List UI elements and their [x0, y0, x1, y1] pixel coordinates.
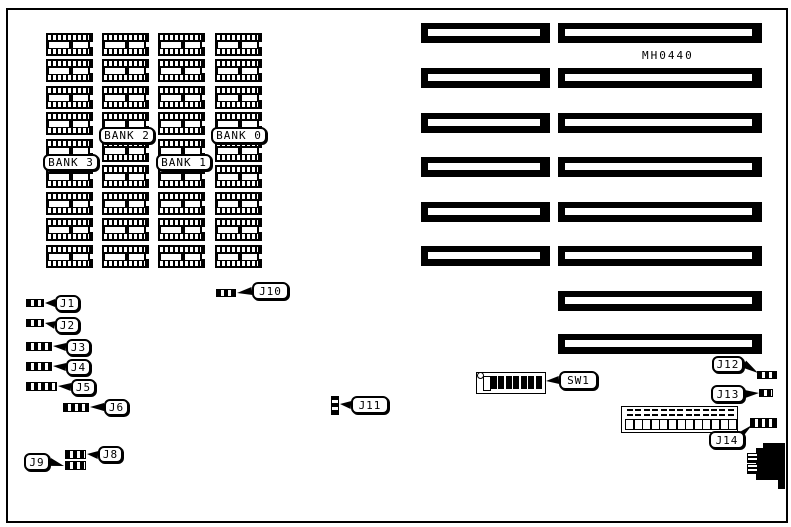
chip-detail	[217, 194, 258, 199]
callout-j1: J1	[55, 295, 80, 312]
chip-detail	[185, 121, 200, 127]
chip-detail	[73, 227, 88, 233]
slot-opening	[428, 208, 540, 215]
chip-detail	[73, 68, 88, 74]
jumper-j2	[26, 319, 44, 327]
power-connector-pin	[703, 409, 709, 416]
chip-detail	[242, 174, 257, 180]
callout-j10: J10	[252, 282, 289, 300]
expansion-slot-left-1	[421, 23, 550, 43]
chip-detail	[160, 35, 201, 40]
dip-switch	[476, 372, 546, 394]
chip-detail	[160, 141, 201, 146]
chip-detail	[48, 35, 89, 40]
memory-chip	[102, 59, 149, 82]
expansion-slot-right-4	[558, 157, 762, 177]
bank-label-bank1: BANK 1	[156, 154, 212, 171]
chip-notch	[202, 42, 205, 47]
chip-notch	[90, 121, 93, 126]
chip-notch	[146, 254, 149, 259]
memory-chip	[215, 165, 262, 188]
slot-opening	[565, 208, 752, 215]
slot-opening	[565, 163, 752, 170]
chip-notch	[90, 174, 93, 179]
chip-detail	[185, 201, 200, 207]
chip-detail	[161, 201, 181, 207]
chip-notch	[259, 148, 262, 153]
callout-j8: J8	[98, 446, 123, 463]
connector-pins-1	[747, 453, 758, 463]
dip-switch-cell-3	[498, 376, 504, 389]
expansion-slot-left-4	[421, 157, 550, 177]
callout-j11: J11	[351, 396, 389, 414]
slot-opening	[565, 74, 752, 81]
memory-chip	[102, 218, 149, 241]
chip-detail	[49, 121, 69, 127]
chip-detail	[104, 61, 145, 66]
power-connector-pin	[661, 409, 667, 416]
chip-detail	[185, 68, 200, 74]
memory-chip	[215, 59, 262, 82]
chip-notch	[259, 121, 262, 126]
power-connector-pin	[711, 409, 717, 416]
chip-detail	[161, 68, 181, 74]
chip-detail	[105, 148, 125, 154]
chip-notch	[90, 42, 93, 47]
chip-detail	[160, 208, 201, 213]
power-connector	[621, 406, 738, 433]
dip-switch-cell-4	[506, 376, 512, 389]
chip-detail	[48, 181, 89, 186]
chip-detail	[104, 35, 145, 40]
chip-detail	[73, 95, 88, 101]
memory-chip	[215, 192, 262, 215]
jumper-j12	[757, 371, 777, 379]
expansion-slot-right-3	[558, 113, 762, 133]
memory-chip	[102, 245, 149, 268]
chip-detail	[49, 174, 69, 180]
chip-detail	[129, 227, 144, 233]
chip-notch	[202, 68, 205, 73]
chip-detail	[217, 208, 258, 213]
chip-detail	[161, 42, 181, 48]
chip-detail	[129, 174, 144, 180]
chip-detail	[73, 254, 88, 260]
chip-detail	[185, 227, 200, 233]
chip-detail	[104, 49, 145, 54]
callout-j3: J3	[66, 339, 91, 356]
chip-detail	[185, 174, 200, 180]
chip-detail	[104, 114, 145, 119]
connector-pins-2	[747, 464, 758, 474]
chip-detail	[129, 254, 144, 260]
chip-notch	[146, 42, 149, 47]
power-connector-pin	[644, 409, 650, 416]
memory-chip	[158, 86, 205, 109]
chip-detail	[185, 42, 200, 48]
jumper-j13	[759, 389, 773, 397]
chip-detail	[48, 234, 89, 239]
chip-notch	[202, 254, 205, 259]
chip-detail	[160, 88, 201, 93]
memory-chip	[158, 245, 205, 268]
jumper-j11	[331, 396, 339, 415]
chip-detail	[129, 95, 144, 101]
callout-j12: J12	[712, 356, 744, 373]
expansion-slot-left-2	[421, 68, 550, 88]
part-number: MH0440	[642, 49, 694, 62]
chip-notch	[146, 227, 149, 232]
chip-detail	[160, 234, 201, 239]
jumper-j3	[26, 342, 52, 351]
chip-notch	[259, 174, 262, 179]
chip-detail	[129, 42, 144, 48]
chip-detail	[160, 261, 201, 266]
expansion-slot-left-3	[421, 113, 550, 133]
memory-chip	[158, 112, 205, 135]
power-connector-pin	[694, 409, 700, 416]
chip-detail	[73, 42, 88, 48]
chip-notch	[202, 95, 205, 100]
jumper-j8a	[65, 450, 86, 459]
memory-chip	[46, 33, 93, 56]
chip-detail	[104, 247, 145, 252]
chip-detail	[161, 254, 181, 260]
callout-j14: J14	[709, 431, 745, 449]
slot-opening	[565, 297, 752, 304]
chip-detail	[48, 261, 89, 266]
slot-opening	[565, 119, 752, 126]
expansion-slot-right-8	[558, 334, 762, 354]
chip-detail	[242, 201, 257, 207]
chip-notch	[146, 68, 149, 73]
callout-j13: J13	[711, 385, 745, 403]
chip-detail	[129, 148, 144, 154]
chip-notch	[146, 95, 149, 100]
power-connector-pin	[635, 409, 641, 416]
jumper-j5	[26, 382, 57, 391]
chip-detail	[218, 254, 238, 260]
chip-detail	[160, 61, 201, 66]
chip-notch	[202, 148, 205, 153]
memory-chip	[102, 86, 149, 109]
chip-detail	[48, 102, 89, 107]
slot-opening	[565, 252, 752, 259]
chip-detail	[105, 227, 125, 233]
chip-detail	[242, 254, 257, 260]
callout-j9: J9	[24, 453, 50, 471]
chip-notch	[202, 174, 205, 179]
chip-notch	[259, 201, 262, 206]
chip-notch	[146, 148, 149, 153]
chip-detail	[217, 88, 258, 93]
bank-label-bank0: BANK 0	[211, 127, 267, 144]
chip-detail	[160, 220, 201, 225]
jumper-j6	[63, 403, 89, 412]
power-connector-pin	[728, 419, 737, 430]
memory-chip	[215, 86, 262, 109]
memory-chip	[46, 192, 93, 215]
slot-opening	[428, 29, 540, 36]
chip-detail	[105, 68, 125, 74]
power-connector-pin	[728, 409, 734, 416]
callout-j4: J4	[66, 359, 91, 376]
chip-detail	[73, 174, 88, 180]
chip-notch	[202, 121, 205, 126]
chip-detail	[218, 227, 238, 233]
chip-detail	[129, 68, 144, 74]
memory-chip	[46, 112, 93, 135]
memory-chip	[215, 33, 262, 56]
chip-notch	[259, 68, 262, 73]
jumper-j4	[26, 362, 52, 371]
memory-chip	[102, 165, 149, 188]
power-connector-pin	[686, 409, 692, 416]
chip-detail	[218, 42, 238, 48]
chip-detail	[48, 49, 89, 54]
chip-notch	[259, 254, 262, 259]
slot-opening	[428, 74, 540, 81]
power-connector-pin	[719, 409, 725, 416]
dip-switch-cell-7	[528, 376, 534, 389]
expansion-slot-left-5	[421, 202, 550, 222]
chip-notch	[146, 201, 149, 206]
chip-detail	[105, 95, 125, 101]
expansion-slot-right-7	[558, 291, 762, 311]
chip-detail	[242, 148, 257, 154]
chip-detail	[161, 121, 181, 127]
expansion-slot-left-6	[421, 246, 550, 266]
slot-opening	[428, 163, 540, 170]
chip-detail	[104, 167, 145, 172]
chip-detail	[160, 102, 201, 107]
chip-detail	[160, 181, 201, 186]
memory-chip	[158, 218, 205, 241]
chip-notch	[146, 174, 149, 179]
memory-chip	[102, 33, 149, 56]
chip-detail	[48, 208, 89, 213]
chip-detail	[160, 247, 201, 252]
chip-detail	[160, 114, 201, 119]
chip-notch	[259, 42, 262, 47]
chip-detail	[73, 201, 88, 207]
slot-opening	[565, 340, 752, 347]
chip-notch	[90, 227, 93, 232]
chip-detail	[160, 194, 201, 199]
dip-switch-cell-8	[536, 376, 542, 389]
chip-detail	[218, 68, 238, 74]
slot-opening	[428, 252, 540, 259]
chip-detail	[242, 42, 257, 48]
bank-label-bank2: BANK 2	[99, 127, 155, 144]
dip-switch-cell-5	[513, 376, 519, 389]
power-connector-pin	[652, 409, 658, 416]
memory-chip	[215, 218, 262, 241]
chip-detail	[49, 42, 69, 48]
chip-detail	[218, 174, 238, 180]
power-connector-pin	[627, 409, 633, 416]
chip-notch	[90, 148, 93, 153]
chip-detail	[185, 95, 200, 101]
chip-detail	[48, 61, 89, 66]
callout-sw1: SW1	[559, 371, 598, 390]
memory-chip	[158, 59, 205, 82]
chip-detail	[48, 194, 89, 199]
bank-label-bank3: BANK 3	[43, 154, 99, 171]
chip-detail	[217, 75, 258, 80]
jumper-j1	[26, 299, 44, 307]
chip-detail	[217, 35, 258, 40]
chip-detail	[104, 208, 145, 213]
dip-switch-cell-6	[521, 376, 527, 389]
expansion-slot-right-2	[558, 68, 762, 88]
chip-notch	[90, 95, 93, 100]
chip-detail	[242, 68, 257, 74]
memory-chip	[46, 86, 93, 109]
chip-detail	[161, 95, 181, 101]
power-connector-pin	[669, 409, 675, 416]
chip-detail	[218, 148, 238, 154]
jumper-j14	[750, 418, 777, 428]
chip-notch	[90, 201, 93, 206]
chip-detail	[217, 102, 258, 107]
chip-detail	[217, 261, 258, 266]
callout-j5: J5	[71, 379, 96, 396]
slot-opening	[428, 119, 540, 126]
chip-detail	[218, 201, 238, 207]
chip-detail	[105, 254, 125, 260]
callout-j6: J6	[104, 399, 129, 416]
chip-detail	[217, 167, 258, 172]
chip-notch	[146, 121, 149, 126]
chip-detail	[104, 181, 145, 186]
chip-detail	[160, 49, 201, 54]
chip-detail	[104, 194, 145, 199]
chip-detail	[217, 61, 258, 66]
chip-detail	[48, 247, 89, 252]
memory-chip	[102, 192, 149, 215]
chip-detail	[48, 128, 89, 133]
chip-detail	[185, 254, 200, 260]
chip-detail	[105, 174, 125, 180]
expansion-slot-right-1	[558, 23, 762, 43]
chip-detail	[104, 155, 145, 160]
memory-chip	[46, 59, 93, 82]
callout-j2: J2	[55, 317, 80, 334]
chip-detail	[105, 42, 125, 48]
chip-detail	[217, 181, 258, 186]
chip-detail	[48, 114, 89, 119]
chip-detail	[161, 174, 181, 180]
memory-chip	[158, 33, 205, 56]
chip-detail	[104, 261, 145, 266]
chip-notch	[202, 227, 205, 232]
chip-detail	[217, 234, 258, 239]
memory-chip	[46, 245, 93, 268]
chip-detail	[104, 102, 145, 107]
chip-detail	[217, 220, 258, 225]
chip-detail	[49, 201, 69, 207]
expansion-slot-right-5	[558, 202, 762, 222]
board-diagram: MH0440 BANK 3BANK 2BANK 1BANK 0J1J2J3J4J…	[0, 0, 791, 527]
chip-notch	[259, 227, 262, 232]
chip-detail	[104, 220, 145, 225]
chip-detail	[48, 141, 89, 146]
jumper-j10	[216, 289, 236, 297]
chip-detail	[217, 155, 258, 160]
slot-opening	[565, 29, 752, 36]
memory-chip	[215, 245, 262, 268]
expansion-slot-right-6	[558, 246, 762, 266]
chip-notch	[202, 201, 205, 206]
chip-detail	[217, 114, 258, 119]
chip-detail	[49, 254, 69, 260]
chip-notch	[90, 254, 93, 259]
memory-chip	[158, 192, 205, 215]
chip-detail	[48, 75, 89, 80]
power-connector-pin	[677, 409, 683, 416]
chip-detail	[160, 75, 201, 80]
chip-detail	[104, 88, 145, 93]
chip-detail	[218, 95, 238, 101]
chip-detail	[73, 121, 88, 127]
chip-detail	[105, 201, 125, 207]
memory-chip	[46, 218, 93, 241]
dip-switch-cell-2	[491, 376, 497, 389]
chip-detail	[48, 220, 89, 225]
chip-detail	[160, 128, 201, 133]
chip-detail	[129, 201, 144, 207]
jumper-j8b	[65, 461, 86, 470]
chip-detail	[242, 95, 257, 101]
chip-detail	[242, 227, 257, 233]
chip-detail	[48, 88, 89, 93]
chip-detail	[49, 95, 69, 101]
chip-detail	[217, 49, 258, 54]
chip-detail	[161, 227, 181, 233]
chip-notch	[90, 68, 93, 73]
chip-detail	[49, 68, 69, 74]
chip-detail	[104, 234, 145, 239]
chip-detail	[217, 247, 258, 252]
chip-detail	[49, 227, 69, 233]
chip-notch	[259, 95, 262, 100]
chip-detail	[104, 75, 145, 80]
